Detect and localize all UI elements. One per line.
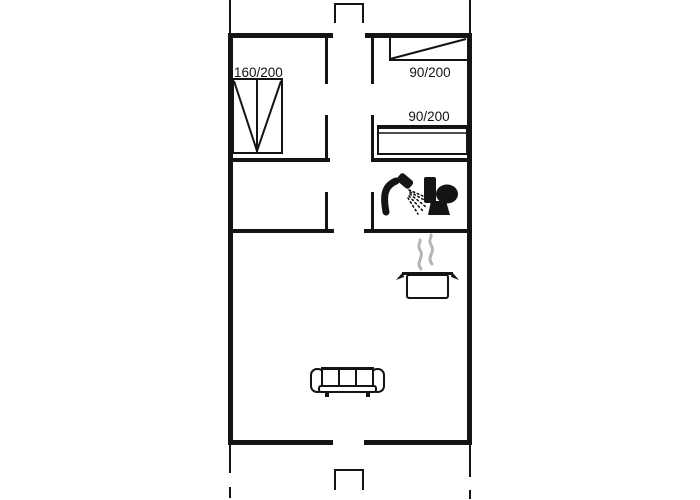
entrance-step-bottom [335, 470, 363, 490]
shower-icon [385, 172, 426, 214]
single-bed-icon-right [378, 125, 467, 154]
wall-livingroom-top-right [364, 229, 472, 233]
wall-right [467, 33, 472, 445]
toilet-icon [424, 177, 458, 215]
wall-bottom-right [364, 440, 472, 445]
hall-wall-left-upper [325, 38, 328, 84]
hall-wall-right-upper [371, 38, 374, 84]
wall-bottom-left [228, 440, 333, 445]
floor-plan-page: 160/200 90/200 90/200 [0, 0, 700, 500]
single-bed-icon-top [390, 38, 467, 60]
wall-top-right [365, 33, 472, 38]
double-bed-size-label: 160/200 [234, 65, 283, 80]
boundary-tick-bottom-right [469, 490, 471, 499]
boundary-line-top-left [229, 0, 231, 33]
sofa-icon [311, 368, 384, 397]
wall-bathroom-top [371, 158, 472, 162]
boundary-line-bottom-right [469, 445, 471, 477]
cooking-pot-icon [396, 272, 459, 298]
hall-wall-left-middle [325, 115, 328, 160]
entrance-step-top [335, 4, 363, 23]
wall-livingroom-top-left [228, 229, 334, 233]
boundary-line-top-right [469, 0, 471, 33]
hall-wall-right-lower [371, 192, 374, 232]
floor-plan-drawing: 160/200 90/200 90/200 [0, 0, 700, 500]
double-bed-icon [233, 79, 282, 153]
single-bed-top-size-label: 90/200 [409, 65, 450, 80]
single-bed-right-size-label: 90/200 [408, 109, 449, 124]
hall-wall-right-middle [371, 115, 374, 160]
wall-bedroom-divider-left [228, 158, 330, 162]
wall-top-left [228, 33, 333, 38]
steam-icon [419, 235, 433, 269]
boundary-tick-bottom-left [229, 487, 231, 498]
hall-wall-left-lower [325, 192, 328, 232]
boundary-line-bottom-left [229, 445, 231, 473]
